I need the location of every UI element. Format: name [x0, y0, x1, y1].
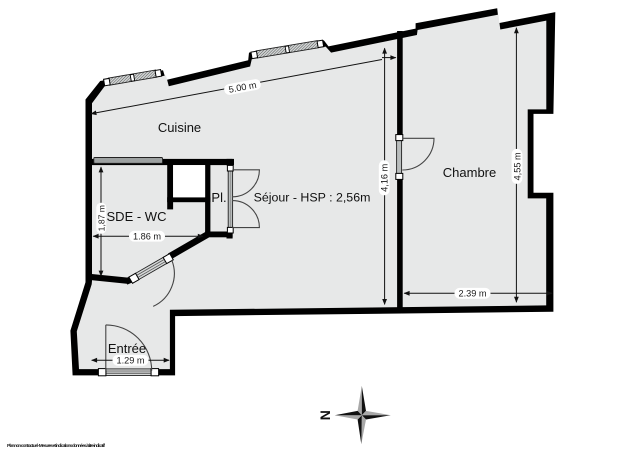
svg-text:Cuisine: Cuisine	[158, 120, 201, 135]
svg-text:Séjour - HSP : 2,56m: Séjour - HSP : 2,56m	[254, 191, 371, 205]
svg-text:4,16 m: 4,16 m	[380, 163, 390, 191]
svg-text:Entrée: Entrée	[108, 341, 146, 356]
svg-text:N: N	[317, 410, 333, 420]
svg-text:Pl.: Pl.	[211, 190, 226, 205]
svg-text:1,87 m: 1,87 m	[97, 205, 107, 231]
svg-text:Plan non contractuel - Mesures: Plan non contractuel - Mesures et indica…	[7, 443, 105, 449]
svg-text:4,55 m: 4,55 m	[512, 152, 522, 180]
svg-text:1.86 m: 1.86 m	[133, 232, 161, 242]
svg-text:SDE - WC: SDE - WC	[107, 209, 167, 224]
svg-text:2.39 m: 2.39 m	[458, 289, 486, 299]
svg-text:Chambre: Chambre	[443, 165, 496, 180]
svg-text:1.29 m: 1.29 m	[116, 356, 144, 366]
